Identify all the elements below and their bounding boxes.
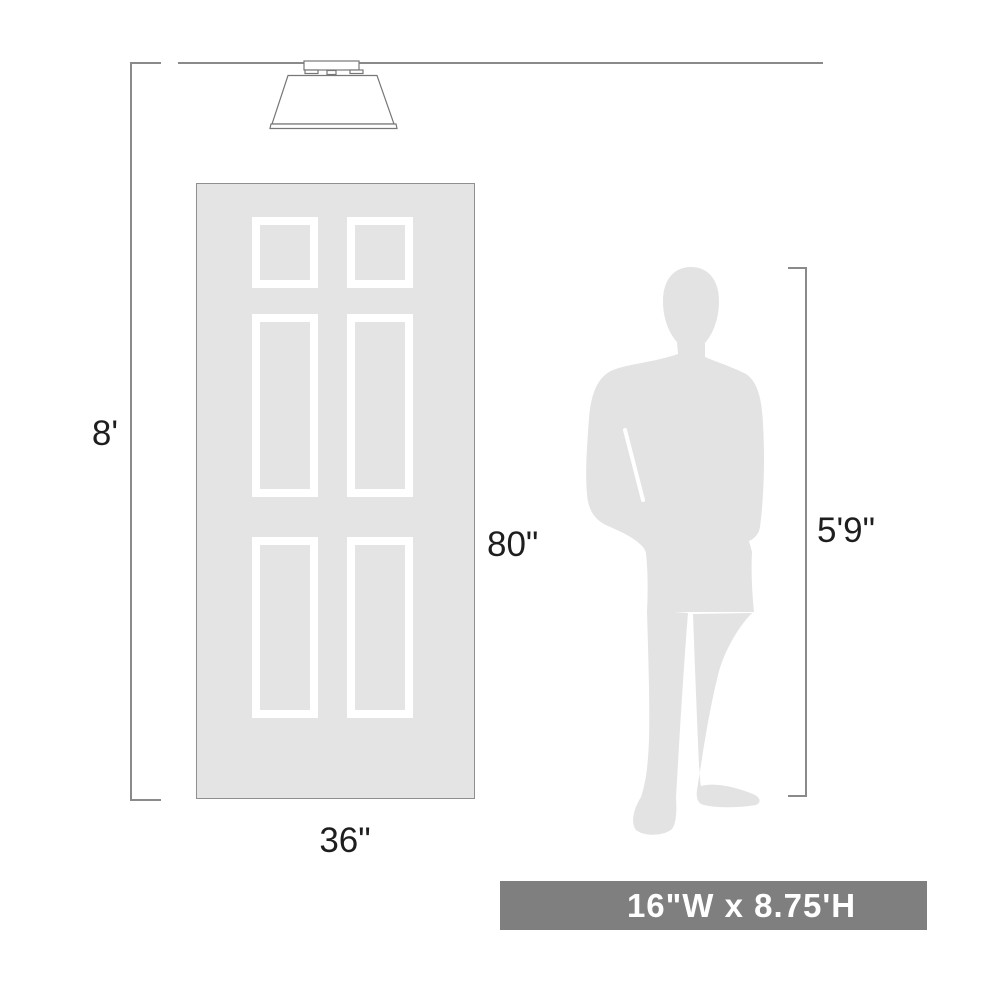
door-width-label: 36" (295, 822, 395, 861)
door-panel (252, 217, 318, 288)
dimension-tick-bottom (788, 795, 807, 797)
dimension-tick-bottom (130, 799, 161, 801)
scale-diagram: 8' 80" 36" 5'9" 16"W x 8.75' (0, 0, 1000, 1000)
door-panel (252, 314, 318, 497)
size-banner: 16"W x 8.75'H (500, 881, 927, 930)
flush-mount-ceiling-light-icon (265, 55, 400, 135)
dimension-tick-top (130, 62, 161, 64)
dimension-line-vertical (805, 267, 807, 797)
door-panel (347, 217, 413, 288)
person-silhouette (575, 260, 775, 845)
ceiling-height-label: 8' (75, 415, 135, 454)
door-panel (347, 537, 413, 718)
door-panel (347, 314, 413, 497)
door-silhouette (196, 183, 475, 799)
door-panel (252, 537, 318, 718)
size-banner-label: 16"W x 8.75'H (627, 887, 856, 925)
person-height-label: 5'9" (817, 512, 875, 551)
dimension-tick-top (788, 267, 807, 269)
door-height-label: 80" (487, 526, 538, 565)
